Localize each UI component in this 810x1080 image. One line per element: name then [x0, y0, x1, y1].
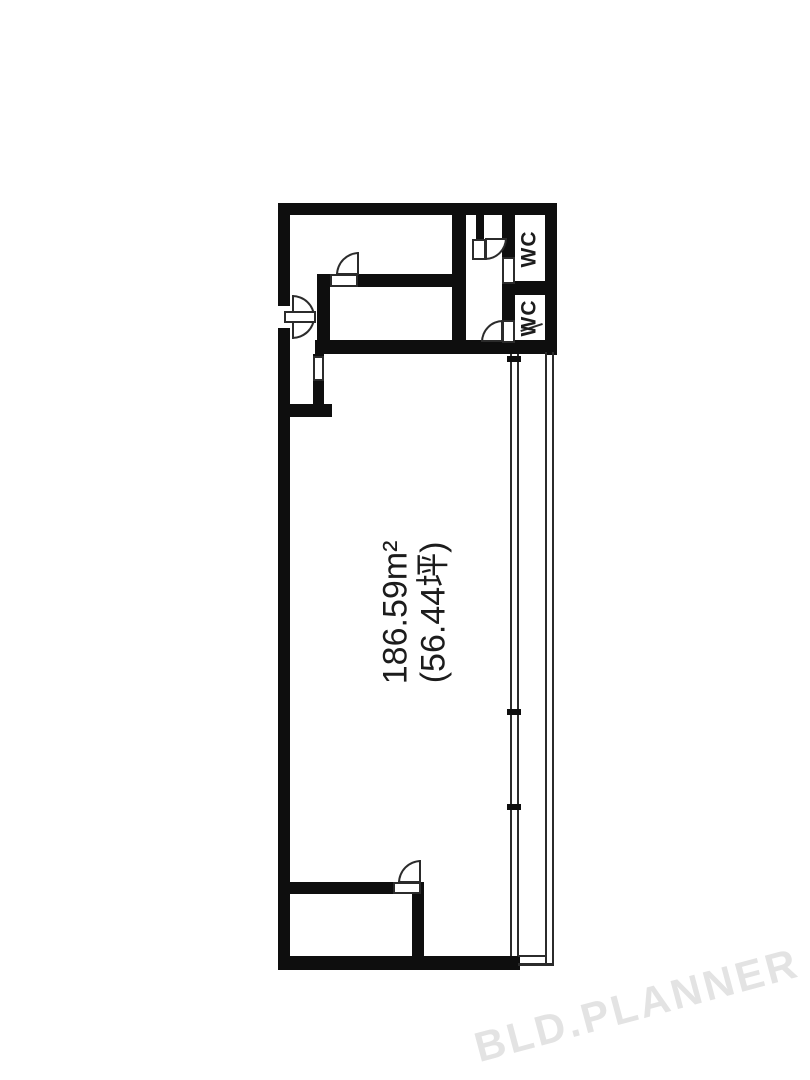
- window-outer-rail-line-a: [545, 352, 547, 964]
- small-room-door-opening: [393, 882, 421, 894]
- vestibule-door-leaf: [313, 356, 324, 381]
- wall-inner-room-left: [317, 274, 330, 352]
- area-label-square-meters: 186.59m²: [377, 540, 415, 684]
- window-sash-tick-1: [507, 356, 521, 362]
- inner-room-door-leaf: [330, 274, 358, 287]
- window-inner-rail-line-a: [510, 354, 512, 956]
- wc-bottom-room: WC: [502, 293, 557, 343]
- window-sash-tick-2: [507, 709, 521, 715]
- wc-top-room: WC: [502, 220, 557, 278]
- wall-partition-vestibule: [452, 215, 466, 352]
- left-door-leaf: [284, 311, 316, 323]
- window-bottom-cap-outer: [518, 963, 554, 966]
- watermark-text: BLD.PLANNER: [470, 942, 803, 1069]
- window-inner-rail-line-b: [517, 354, 519, 956]
- wall-vestibule-horizontal: [288, 404, 332, 417]
- window-outer-rail-line-b: [552, 352, 554, 964]
- wc-top-label: WC: [518, 231, 542, 268]
- wc-bottom-label: WC: [518, 300, 542, 337]
- area-label: 186.59m² (56.44坪): [377, 540, 454, 684]
- wall-partition-stub: [476, 215, 484, 240]
- small-room-door-swing-arc: [398, 860, 421, 883]
- wall-bottom: [278, 956, 520, 970]
- main-room-area: 186.59m² (56.44坪): [345, 538, 485, 686]
- window-sash-tick-3: [507, 804, 521, 810]
- top-wc-door-panel: [472, 239, 486, 260]
- wall-top: [278, 203, 557, 215]
- area-label-tsubo: (56.44坪): [415, 540, 453, 684]
- inner-room-door-swing-arc: [336, 252, 359, 275]
- window-bottom-cap-inner: [518, 955, 546, 957]
- floor-plan-canvas: WC WC 186.59m² (56.44坪) BLD.PLANNER: [0, 0, 810, 1080]
- bottom-wc-door-swing-arc: [481, 320, 503, 342]
